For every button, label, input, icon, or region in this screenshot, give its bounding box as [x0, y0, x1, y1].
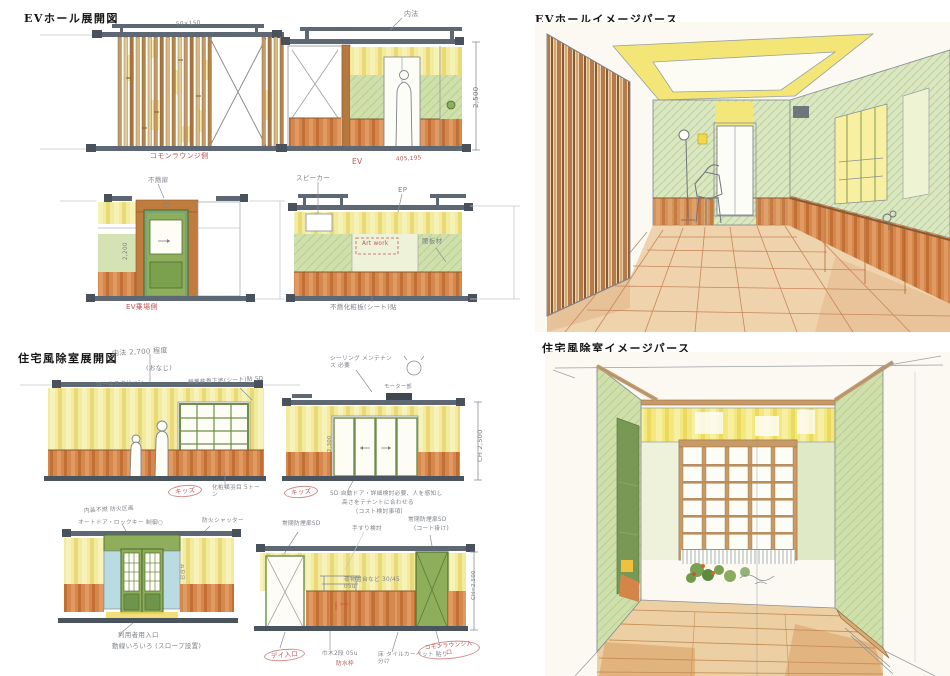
dimension-2500: 2,500 [472, 86, 481, 108]
dimension-door-height: 2,300 [327, 435, 334, 452]
annotation-track-size: 50×150 [176, 20, 201, 28]
annotation-cost-note: (コスト検討事項) [356, 509, 403, 516]
annotation-smoke-door-right: 常閉防煙扉SD [408, 517, 447, 524]
annotation-horizontal-siding: 化粧横羽目 5トーン [212, 485, 260, 499]
annotation-same: (おなじ) [146, 364, 172, 372]
annotation-handrail: 手すり検討 [352, 526, 382, 533]
annotation-smoke-door-left: 常閉防煙扉SD [282, 521, 321, 528]
elevation-vestibule-service-wall [254, 532, 478, 652]
annotation-speaker: スピーカー [296, 174, 330, 182]
annotation-wainscot-material: 腰板材 [422, 237, 442, 245]
annotation-ep-paint: EP [398, 186, 407, 195]
annotation-finish-panel: 不燃化粧板(シート)貼 [330, 303, 397, 311]
annotation-baseboard: 巾木2段 05u [322, 651, 358, 658]
annotation-luggage-shelf: 荷物置台など 30/45 05u [344, 577, 406, 591]
annotation-user-entrance: 利用者用入口 [118, 631, 159, 639]
annotation-artwork: Art work [362, 241, 388, 248]
elevation-landing-door [60, 184, 285, 302]
elevation-vestibule-sliding-door [240, 356, 482, 490]
annotation-meeting-stile: 召合せ [180, 563, 187, 580]
hall-back-wall [653, 100, 790, 225]
annotation-autodoor-lock: オートドア・ロックキー 制御○ [78, 520, 163, 527]
ev-hall-elevation-drawings [0, 0, 530, 340]
elevation-slat-wall [40, 24, 286, 152]
annotation-fire-shutter: 防火シャッター [202, 518, 244, 525]
dimension-2200: 2,200 [123, 242, 130, 260]
annotation-sealing-maintenance: シーリング メンテナンス 必要 [330, 356, 396, 370]
annotation-fireproof-door: 不燃扉 [148, 176, 168, 184]
elevation-vestibule-french-door [58, 524, 241, 636]
annotation-sd-note-2: 高さをテナントに合わせる [342, 500, 414, 507]
annotation-circulation-slope: 動線いろいろ (スロープ設置) [112, 642, 201, 650]
dimension-ch-2500: CH 2,500 [476, 429, 484, 462]
drawing-sheet: EVホール展開図 EVホールイメージパース 住宅風除室展開図 住宅風除室イメージ… [0, 0, 950, 676]
dimension-ch-2500-right: CH=2,500 [471, 570, 478, 600]
elevation-ev-door-wall [278, 18, 480, 152]
elevation-vestibule-window-wall [20, 354, 300, 488]
vestibule-perspective-sketch [545, 352, 950, 676]
elevation-counter-wall [286, 182, 520, 302]
annotation-uchinori: 内法 [404, 10, 419, 19]
annotation-waterproof: 防水枠 [336, 661, 354, 668]
annotation-common-lounge-side: コモンラウンジ側 [150, 152, 208, 161]
annotation-sd-note-1: SD 自動ドア・詳細検討必要、人を感知し [330, 491, 442, 498]
annotation-motor: モーター部 [384, 384, 412, 391]
annotation-ev-number: 405,195 [396, 155, 422, 163]
annotation-ev-landing-side: EV乗場側 [126, 303, 158, 312]
annotation-ev-label: EV [352, 157, 362, 166]
hall-slat-wall [547, 34, 630, 316]
vestibule-elevation-drawings [0, 340, 530, 676]
ev-hall-perspective-sketch [535, 22, 950, 332]
annotation-coat-hook: (コート掛け) [414, 526, 449, 533]
